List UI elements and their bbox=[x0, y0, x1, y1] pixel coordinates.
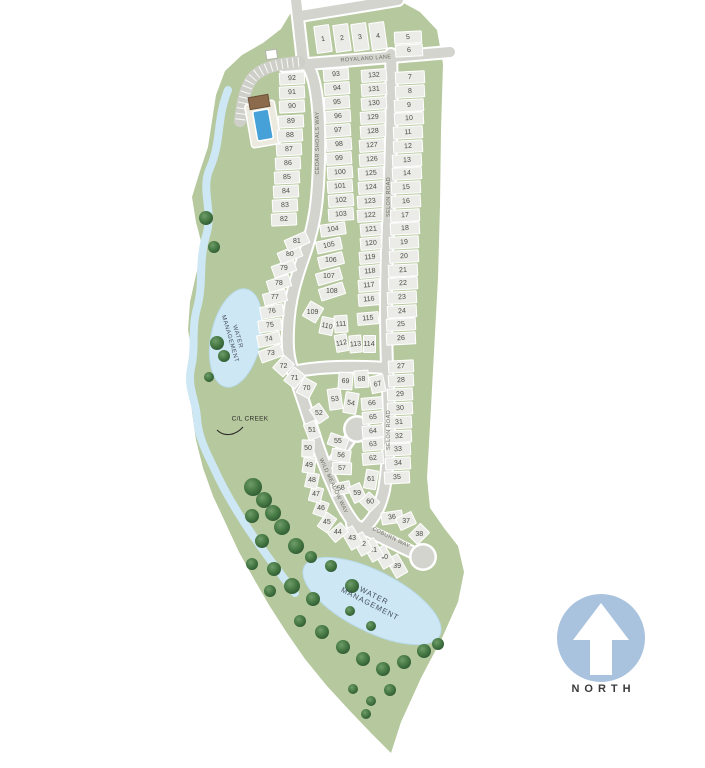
tree-icon bbox=[245, 509, 259, 523]
lot-number: 103 bbox=[335, 210, 347, 218]
lot-number: 77 bbox=[271, 294, 279, 301]
lot-number: 74 bbox=[264, 335, 273, 343]
lot-5: 5 bbox=[394, 30, 423, 44]
tree-icon bbox=[432, 638, 444, 650]
creek-label: C/L CREEK bbox=[232, 416, 269, 423]
lot-100: 100 bbox=[327, 165, 354, 180]
lot-number: 27 bbox=[397, 362, 405, 369]
lot-number: 85 bbox=[283, 173, 291, 180]
lot-10: 10 bbox=[394, 111, 425, 126]
lot-15: 15 bbox=[391, 180, 422, 195]
lot-number: 105 bbox=[323, 240, 336, 249]
lot-number: 121 bbox=[365, 225, 377, 233]
lot-69: 69 bbox=[337, 371, 353, 390]
lot-number: 67 bbox=[372, 380, 381, 388]
tree-icon bbox=[255, 534, 269, 548]
lot-13: 13 bbox=[392, 153, 423, 168]
lot-53: 53 bbox=[327, 387, 344, 411]
tree-icon bbox=[256, 492, 272, 508]
lot-number: 108 bbox=[326, 288, 338, 295]
lot-number: 70 bbox=[302, 384, 310, 391]
lot-number: 55 bbox=[334, 437, 342, 444]
lot-number: 5 bbox=[406, 33, 410, 40]
lot-50: 50 bbox=[301, 439, 315, 457]
lot-8: 8 bbox=[395, 84, 426, 99]
lot-number: 65 bbox=[369, 413, 377, 421]
lot-number: 87 bbox=[285, 145, 293, 152]
lot-number: 125 bbox=[365, 169, 377, 177]
lot-117: 117 bbox=[357, 278, 380, 293]
lot-number: 20 bbox=[400, 252, 408, 259]
street-label-selon-road-lower: SELON ROAD bbox=[386, 410, 392, 450]
lot-27: 27 bbox=[388, 359, 415, 373]
lot-number: 120 bbox=[365, 239, 377, 247]
lot-number: 94 bbox=[333, 84, 341, 92]
lot-number: 122 bbox=[364, 211, 376, 219]
tree-icon bbox=[315, 625, 329, 639]
lot-number: 127 bbox=[366, 141, 378, 149]
lot-number: 59 bbox=[353, 490, 361, 497]
lot-25: 25 bbox=[386, 317, 417, 332]
lot-number: 64 bbox=[369, 427, 377, 435]
lot-118: 118 bbox=[358, 264, 381, 279]
lot-number: 109 bbox=[307, 309, 319, 316]
lot-number: 83 bbox=[281, 201, 289, 208]
lot-number: 56 bbox=[337, 451, 346, 459]
lot-number: 114 bbox=[363, 341, 374, 348]
lot-122: 122 bbox=[357, 208, 384, 223]
lot-102: 102 bbox=[328, 193, 355, 208]
lot-number: 2 bbox=[340, 34, 345, 41]
lot-number: 63 bbox=[369, 440, 377, 448]
lot-number: 115 bbox=[362, 314, 374, 322]
tree-icon bbox=[361, 709, 371, 719]
lot-number: 72 bbox=[279, 362, 287, 369]
lot-number: 32 bbox=[395, 432, 403, 439]
lot-number: 19 bbox=[400, 238, 408, 245]
lot-number: 44 bbox=[334, 529, 342, 536]
lot-126: 126 bbox=[359, 152, 386, 167]
lot-95: 95 bbox=[324, 95, 351, 110]
tree-icon bbox=[376, 662, 390, 676]
lot-number: 48 bbox=[308, 477, 316, 484]
lot-number: 13 bbox=[403, 156, 411, 163]
lot-number: 112 bbox=[335, 339, 347, 348]
tree-icon bbox=[284, 578, 300, 594]
lot-83: 83 bbox=[272, 198, 299, 212]
lot-98: 98 bbox=[326, 137, 353, 152]
lot-number: 31 bbox=[395, 418, 403, 425]
lot-number: 124 bbox=[365, 183, 377, 191]
lot-26: 26 bbox=[386, 331, 417, 346]
lot-number: 17 bbox=[401, 211, 409, 218]
lot-number: 93 bbox=[332, 70, 340, 78]
tree-icon bbox=[348, 684, 358, 694]
lot-120: 120 bbox=[359, 236, 382, 251]
lot-96: 96 bbox=[325, 109, 352, 124]
lot-24: 24 bbox=[387, 304, 418, 319]
tree-icon bbox=[366, 621, 376, 631]
lot-number: 79 bbox=[280, 265, 288, 272]
lot-12: 12 bbox=[393, 139, 424, 154]
tree-icon bbox=[208, 241, 220, 253]
lot-number: 29 bbox=[396, 390, 404, 397]
tree-icon bbox=[264, 585, 276, 597]
tree-icon bbox=[306, 592, 320, 606]
lot-103: 103 bbox=[328, 207, 355, 222]
tree-icon bbox=[345, 606, 355, 616]
lot-number: 7 bbox=[408, 73, 412, 80]
lot-number: 130 bbox=[368, 99, 380, 107]
lot-number: 24 bbox=[398, 307, 406, 314]
tree-icon bbox=[417, 644, 431, 658]
lot-number: 86 bbox=[284, 159, 292, 166]
tree-icon bbox=[274, 519, 290, 535]
lot-number: 23 bbox=[398, 293, 406, 300]
lot-number: 113 bbox=[349, 340, 361, 348]
lot-number: 52 bbox=[315, 409, 323, 416]
lot-number: 21 bbox=[399, 266, 407, 273]
lot-11: 11 bbox=[393, 125, 424, 140]
lot-63: 63 bbox=[361, 437, 384, 452]
lot-94: 94 bbox=[324, 81, 351, 96]
tree-icon bbox=[384, 684, 396, 696]
lot-130: 130 bbox=[361, 96, 388, 111]
lot-number: 96 bbox=[334, 112, 342, 120]
lot-number: 97 bbox=[334, 126, 342, 134]
lot-28: 28 bbox=[388, 373, 415, 387]
lot-number: 62 bbox=[369, 454, 377, 462]
lot-number: 11 bbox=[404, 128, 412, 135]
lot-111: 111 bbox=[333, 315, 348, 334]
lot-number: 49 bbox=[305, 462, 313, 469]
lot-number: 129 bbox=[367, 113, 379, 121]
lot-85: 85 bbox=[274, 170, 301, 184]
lot-number: 9 bbox=[407, 101, 411, 108]
lot-97: 97 bbox=[325, 123, 352, 138]
lot-number: 69 bbox=[341, 377, 349, 385]
lot-number: 28 bbox=[397, 376, 405, 383]
lot-number: 16 bbox=[402, 197, 410, 204]
lot-number: 98 bbox=[335, 140, 343, 148]
lot-number: 10 bbox=[405, 114, 413, 121]
lot-number: 101 bbox=[334, 182, 346, 190]
tree-icon bbox=[267, 562, 281, 576]
lot-123: 123 bbox=[357, 194, 384, 209]
lot-92: 92 bbox=[279, 71, 306, 85]
lot-number: 81 bbox=[293, 238, 301, 245]
lot-number: 118 bbox=[364, 267, 376, 275]
lot-99: 99 bbox=[326, 151, 353, 166]
lot-90: 90 bbox=[279, 99, 306, 113]
lot-121: 121 bbox=[359, 222, 382, 237]
lot-number: 30 bbox=[396, 404, 404, 411]
lot-number: 3 bbox=[358, 33, 363, 40]
lot-21: 21 bbox=[388, 263, 419, 278]
lot-number: 106 bbox=[325, 257, 337, 264]
lot-86: 86 bbox=[275, 156, 302, 170]
lot-number: 132 bbox=[368, 71, 380, 79]
lot-number: 117 bbox=[363, 281, 375, 289]
tree-icon bbox=[199, 211, 213, 225]
north-arrow-icon bbox=[557, 594, 645, 682]
lot-number: 51 bbox=[308, 426, 316, 433]
lot-number: 73 bbox=[267, 350, 275, 357]
lot-7: 7 bbox=[395, 70, 426, 85]
lot-number: 8 bbox=[408, 87, 412, 94]
lot-125: 125 bbox=[358, 166, 385, 181]
lot-number: 37 bbox=[402, 518, 410, 525]
lot-number: 26 bbox=[397, 334, 405, 341]
north-label: NORTH bbox=[566, 683, 635, 695]
lot-number: 46 bbox=[317, 505, 325, 512]
tree-icon bbox=[336, 640, 350, 654]
lot-35: 35 bbox=[384, 470, 411, 484]
lot-number: 89 bbox=[287, 117, 295, 124]
lot-82: 82 bbox=[271, 212, 298, 226]
lot-101: 101 bbox=[327, 179, 354, 194]
lot-number: 14 bbox=[403, 169, 411, 176]
lot-64: 64 bbox=[361, 424, 384, 439]
lot-19: 19 bbox=[389, 235, 420, 250]
lot-9: 9 bbox=[394, 98, 425, 113]
lot-number: 119 bbox=[364, 253, 376, 261]
lot-18: 18 bbox=[390, 221, 421, 236]
lot-number: 82 bbox=[280, 215, 288, 222]
tree-icon bbox=[265, 505, 281, 521]
lot-119: 119 bbox=[358, 250, 381, 265]
lot-66: 66 bbox=[360, 396, 383, 411]
lot-number: 126 bbox=[366, 155, 378, 163]
lot-number: 34 bbox=[394, 459, 402, 466]
lot-number: 128 bbox=[367, 127, 379, 135]
lot-number: 22 bbox=[399, 279, 407, 286]
lot-number: 4 bbox=[376, 32, 381, 39]
street-label-selon-road-upper: SELON ROAD bbox=[386, 177, 392, 217]
lot-number: 75 bbox=[266, 321, 275, 329]
lot-number: 78 bbox=[275, 280, 283, 287]
lot-number: 100 bbox=[334, 168, 346, 176]
lot-number: 102 bbox=[335, 196, 347, 204]
lot-127: 127 bbox=[359, 138, 386, 153]
lot-17: 17 bbox=[390, 208, 421, 223]
tree-icon bbox=[356, 652, 370, 666]
lot-number: 66 bbox=[368, 399, 376, 407]
lot-62: 62 bbox=[361, 451, 384, 466]
tree-icon bbox=[397, 655, 411, 669]
lot-number: 43 bbox=[348, 535, 356, 542]
lot-91: 91 bbox=[279, 85, 306, 99]
lot-65: 65 bbox=[361, 410, 384, 425]
tree-icon bbox=[325, 560, 337, 572]
lot-number: 53 bbox=[331, 395, 340, 403]
lot-number: 45 bbox=[323, 519, 331, 526]
tree-icon bbox=[305, 551, 317, 563]
lot-22: 22 bbox=[388, 276, 419, 291]
lot-number: 61 bbox=[367, 476, 375, 483]
lot-89: 89 bbox=[278, 114, 305, 128]
lot-number: 47 bbox=[312, 491, 320, 498]
lot-29: 29 bbox=[387, 387, 414, 401]
lot-68: 68 bbox=[353, 369, 369, 388]
lot-114: 114 bbox=[363, 335, 376, 353]
tree-icon bbox=[246, 558, 258, 570]
lot-number: 71 bbox=[290, 374, 298, 381]
tree-icon bbox=[366, 696, 376, 706]
lot-88: 88 bbox=[277, 128, 304, 142]
lot-number: 110 bbox=[321, 321, 333, 330]
lot-112: 112 bbox=[333, 333, 349, 353]
tree-icon bbox=[288, 538, 304, 554]
lot-number: 84 bbox=[282, 187, 290, 194]
tree-icon bbox=[244, 478, 262, 496]
lot-number: 60 bbox=[365, 499, 373, 506]
lot-129: 129 bbox=[360, 110, 387, 125]
lot-number: 57 bbox=[338, 464, 346, 471]
lot-number: 6 bbox=[407, 46, 411, 53]
lot-124: 124 bbox=[358, 180, 385, 195]
lot-87: 87 bbox=[276, 142, 303, 156]
lot-16: 16 bbox=[391, 194, 422, 209]
lot-number: 38 bbox=[415, 531, 423, 538]
lot-number: 116 bbox=[363, 295, 375, 303]
lot-number: 111 bbox=[335, 320, 346, 328]
lot-number: 33 bbox=[394, 445, 402, 452]
lot-number: 1 bbox=[321, 35, 326, 42]
lot-number: 18 bbox=[401, 224, 409, 231]
lot-number: 90 bbox=[288, 102, 296, 109]
lot-number: 88 bbox=[286, 131, 294, 138]
lot-20: 20 bbox=[389, 249, 420, 264]
street-label-cedar-shoals-way: CEDAR SHOALS WAY bbox=[315, 112, 321, 175]
lot-128: 128 bbox=[360, 124, 387, 139]
lot-number: 25 bbox=[397, 320, 405, 327]
lot-number: 104 bbox=[327, 225, 340, 234]
mail-kiosk-icon bbox=[265, 49, 277, 59]
lot-number: 76 bbox=[268, 307, 277, 315]
lot-84: 84 bbox=[273, 184, 300, 198]
lot-number: 123 bbox=[364, 197, 376, 205]
lot-14: 14 bbox=[392, 166, 423, 181]
lot-number: 99 bbox=[335, 154, 343, 162]
lot-number: 131 bbox=[368, 85, 380, 93]
road-entry bbox=[296, 0, 303, 62]
lot-116: 116 bbox=[357, 292, 380, 307]
lot-number: 107 bbox=[323, 273, 335, 280]
lot-number: 91 bbox=[288, 88, 296, 95]
lot-number: 95 bbox=[333, 98, 341, 106]
lot-67: 67 bbox=[368, 374, 386, 395]
lot-number: 92 bbox=[288, 74, 296, 81]
lot-57: 57 bbox=[332, 461, 352, 475]
lot-6: 6 bbox=[395, 43, 424, 57]
lot-number: 68 bbox=[357, 375, 365, 383]
lot-56: 56 bbox=[330, 447, 352, 463]
tree-icon bbox=[210, 336, 224, 350]
lot-23: 23 bbox=[387, 290, 418, 305]
tree-icon bbox=[294, 615, 306, 627]
lot-number: 12 bbox=[404, 142, 412, 149]
lot-number: 50 bbox=[304, 445, 312, 452]
lot-number: 15 bbox=[402, 183, 410, 190]
lot-93: 93 bbox=[323, 67, 350, 82]
lot-number: 54 bbox=[347, 399, 356, 407]
lot-49: 49 bbox=[301, 456, 316, 474]
lot-34: 34 bbox=[385, 456, 412, 470]
lot-115: 115 bbox=[356, 311, 379, 326]
site-plan-map: 1234567891011121314151617181920212223242… bbox=[0, 0, 705, 768]
lot-number: 35 bbox=[393, 473, 401, 480]
lot-131: 131 bbox=[361, 82, 388, 97]
tree-icon bbox=[204, 372, 214, 382]
lot-132: 132 bbox=[361, 68, 388, 83]
lot-113: 113 bbox=[348, 334, 363, 353]
